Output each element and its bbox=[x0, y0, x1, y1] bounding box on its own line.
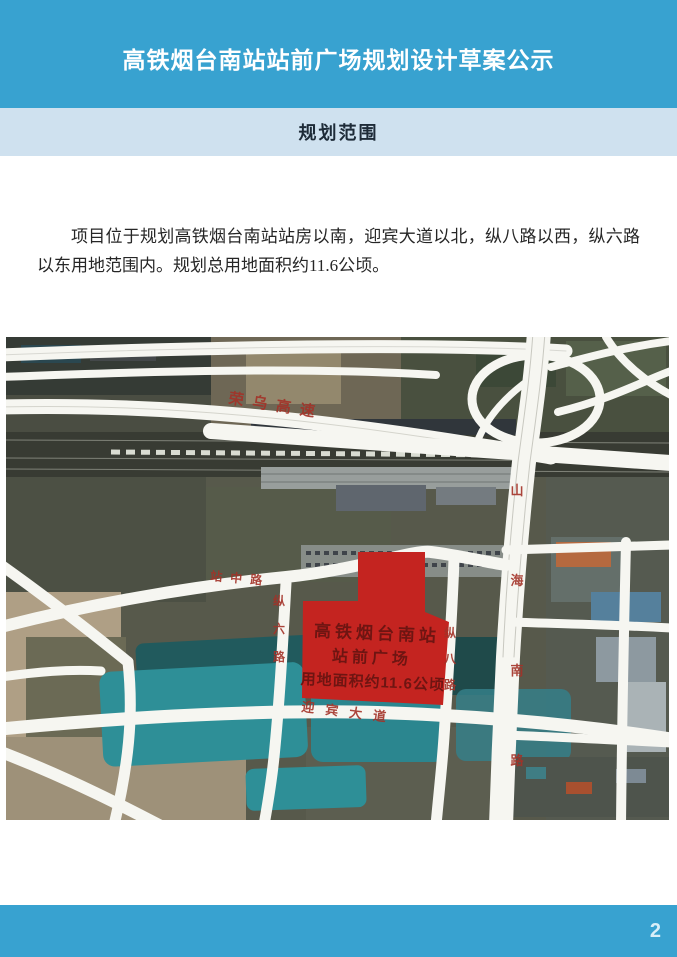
footer-bar: 2 bbox=[0, 905, 677, 957]
satellite-map-svg: 高铁烟台南站 站前广场 用地面积约11.6公顷 荣乌高速 站中路 迎宾大道 纵六… bbox=[6, 337, 669, 820]
section-title: 规划范围 bbox=[299, 119, 379, 145]
page-number: 2 bbox=[650, 920, 677, 943]
road-label-zong8: 纵八路 bbox=[443, 625, 457, 692]
road-label-zong6: 纵六路 bbox=[273, 593, 286, 664]
header-banner: 高铁烟台南站站前广场规划设计草案公示 bbox=[0, 0, 677, 108]
satellite-map-image: 高铁烟台南站 站前广场 用地面积约11.6公顷 荣乌高速 站中路 迎宾大道 纵六… bbox=[6, 337, 669, 820]
section-banner: 规划范围 bbox=[0, 108, 677, 156]
station-building bbox=[336, 485, 426, 511]
page-title: 高铁烟台南站站前广场规划设计草案公示 bbox=[123, 33, 555, 75]
announcement-page: 高铁烟台南站站前广场规划设计草案公示 规划范围 项目位于规划高铁烟台南站站房以南… bbox=[0, 0, 677, 957]
body-paragraph: 项目位于规划高铁烟台南站站房以南，迎宾大道以北，纵八路以西，纵六路以东用地范围内… bbox=[37, 222, 640, 280]
